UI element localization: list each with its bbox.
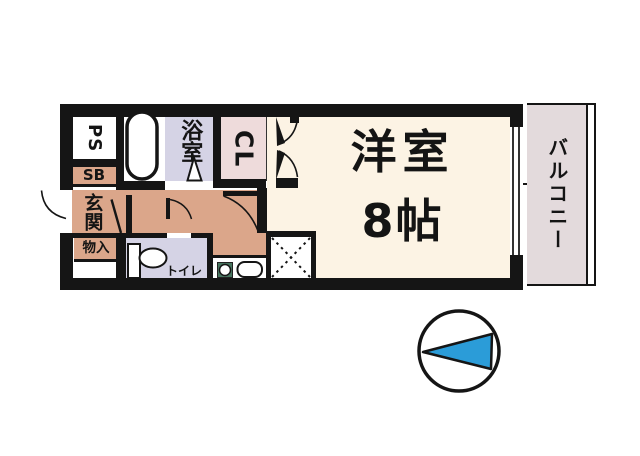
wall-monoire-top xyxy=(60,233,126,238)
room-monoire-label: 物入 xyxy=(83,242,110,256)
storage-white-cell xyxy=(74,262,118,278)
room-bathroom: 浴室 xyxy=(165,117,213,181)
balcony-bottom-line xyxy=(527,284,596,286)
room-bathroom-label: 浴室 xyxy=(178,119,200,163)
wall-kitchen-top xyxy=(207,255,267,258)
floor-plan-canvas: PS SB 玄関 浴室 CL 洋室 8帖 トイレ 物入 xyxy=(0,0,640,456)
room-sb: SB xyxy=(72,167,116,187)
room-closet: CL xyxy=(221,117,266,181)
wall-below-closet xyxy=(213,179,266,188)
wall-left-upper xyxy=(60,104,73,190)
room-toilet-name: トイレ xyxy=(158,263,210,279)
wall-bottom xyxy=(60,278,523,290)
room-ps: PS xyxy=(72,117,116,159)
wall-top xyxy=(60,104,523,117)
window-track-line-2 xyxy=(518,127,520,255)
room-toilet-label: トイレ xyxy=(166,265,202,277)
balcony-railing xyxy=(586,105,596,284)
room-genkan-label: 玄関 xyxy=(82,193,101,231)
bath-tub-area xyxy=(124,117,165,181)
door-hinge-stub-upper xyxy=(290,117,299,123)
wall-right-lower xyxy=(510,255,523,290)
room-sb-label: SB xyxy=(83,168,105,183)
stove-icon xyxy=(217,262,233,278)
room-balcony: バルコニー xyxy=(527,105,586,284)
room-balcony-label: バルコニー xyxy=(546,137,566,252)
wall-monoire-bottom xyxy=(74,259,118,262)
room-living-label: 洋室 xyxy=(351,129,455,176)
room-living-size: 8帖 xyxy=(300,195,505,247)
room-genkan: 玄関 xyxy=(72,190,126,233)
wall-right-upper xyxy=(510,104,523,127)
compass-circle xyxy=(419,311,499,391)
entrance-door-arc xyxy=(42,191,67,219)
room-monoire: 物入 xyxy=(74,238,118,259)
wall-bath-closet xyxy=(213,104,221,181)
wall-left-lower xyxy=(60,233,73,290)
door-hinge-stub-lower xyxy=(276,178,298,188)
room-ps-label: PS xyxy=(85,124,103,152)
room-living-size-label: 8帖 xyxy=(361,198,443,245)
wall-hall-living xyxy=(257,188,267,233)
wall-genkan-stub xyxy=(126,195,132,233)
toilet-door-opening xyxy=(167,233,191,238)
room-living-name: 洋室 xyxy=(300,126,505,178)
compass-needle xyxy=(423,334,492,369)
window-track-line-1 xyxy=(512,127,514,255)
wall-ps-right xyxy=(116,104,124,181)
compass-icon xyxy=(405,300,525,410)
room-closet-label: CL xyxy=(231,130,257,168)
hallway-floor xyxy=(124,190,267,233)
wall-kitchen-left xyxy=(207,235,213,290)
wall-below-tub xyxy=(116,181,165,190)
wall-ps-bottom xyxy=(60,159,124,167)
wall-toilet-top xyxy=(116,233,213,238)
